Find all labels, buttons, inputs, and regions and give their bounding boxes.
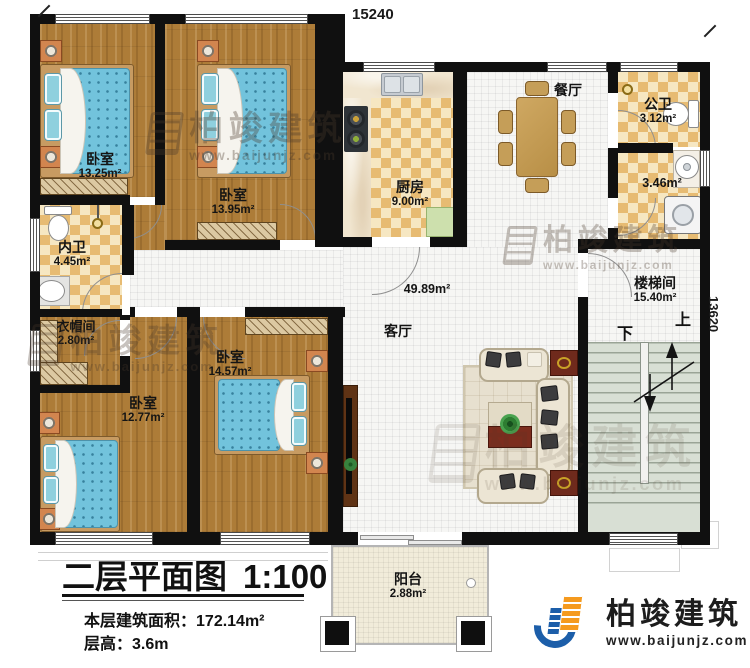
floor-height-value: 3.6m [132,636,168,653]
room-area: 3.12m² [618,113,698,126]
dining-table [516,97,558,177]
window-public-bath [620,62,678,72]
wall-stair-left [578,297,588,545]
bed-pillow [45,74,61,104]
public-bath-label: 公卫 3.12m² [618,97,698,126]
dining-chair [561,142,576,166]
window-bedroom-d [220,532,310,545]
plant-icon [500,414,520,434]
lamp-icon [92,218,103,229]
brand-logo: 柏竣建筑 www.baijunjz.com [534,592,748,656]
sofa-cushion [485,351,502,368]
room-area: 49.89m² [384,282,470,296]
room-area: 2.88m² [363,588,453,601]
title-underline [62,594,304,597]
dining-chair [498,142,513,166]
wall-stair-left-top [578,239,588,253]
basin-drain [683,163,691,171]
stair-down-label: 下 [610,320,640,344]
dimension-top: 15240 [352,6,394,23]
wall-dining-bath-2 [608,148,618,198]
wall-bedroom-c-top-left [130,307,135,317]
bed-pillow [45,110,61,140]
sofa-cushion [505,351,521,367]
brand-name: 柏竣建筑 [606,600,748,630]
window-bedroom-c [55,532,153,545]
room-name: 餐厅 [528,83,608,99]
dining-chair [561,110,576,134]
wall-kitchen-bottom-left [343,237,372,247]
stairwell-label: 楼梯间 15.40m² [612,276,698,305]
porch-outline [609,548,680,572]
plan-scale: 1:100 [243,558,327,596]
kitchen-sink-basin [403,76,420,93]
nightstand [40,40,62,62]
washing-machine-door [672,204,694,226]
bed-pillow [292,383,306,411]
window-bedroom-a [55,14,150,24]
brand-url: www.baijunjz.com [606,633,748,648]
dimension-tick [704,25,717,38]
dimension-right: 13620 [706,296,721,332]
wall-dining-bath-1 [608,62,618,93]
sofa-cushion [499,473,516,490]
wall-wash-bottom [578,239,710,249]
sofa-cushion [519,473,536,490]
inner-bath-label: 内卫 4.45m² [32,240,112,269]
tv-icon [346,398,352,494]
floor-height-label: 层高： [84,636,132,653]
room-area: 12.77m² [98,412,188,425]
toilet-bowl-icon [48,215,69,241]
pull-cord [97,205,99,219]
room-name: 卧室 [188,188,278,204]
toilet-tank-icon [44,206,72,215]
wall-bedroom-d-right [328,307,343,532]
balcony-drain-icon [466,578,476,588]
bed-mattress [218,379,280,451]
wall-inner-bath-right [122,205,134,275]
side-table [550,350,578,376]
balcony-label: 阳台 2.88m² [363,572,453,601]
bedroom-c-label: 卧室 12.77m² [98,396,188,425]
bedroom-a-label: 卧室 13.25m² [55,152,145,181]
dining-chair [525,178,549,193]
room-area: 9.00m² [365,196,455,209]
room-area: 3.46m² [622,176,702,190]
bed-sheet [274,379,294,451]
wash-area-label: 3.46m² [622,176,702,190]
plan-title-row: 二层平面图 1:100 [62,550,327,598]
sofa-cushion-light [527,352,542,367]
plant-icon [344,458,357,471]
window-kitchen [363,62,435,72]
floor-area-value: 172.14m² [196,613,265,630]
wall-cloak-right-top [120,315,130,320]
nightstand [306,452,328,474]
lamp-icon [622,84,633,95]
bedroom-d-label: 卧室 14.57m² [185,350,275,379]
wall-cloak-bottom [30,385,120,393]
title-underline-thin [62,600,304,601]
room-name: 公卫 [618,97,698,113]
bed-pillow [202,74,218,104]
room-area: 4.45m² [32,256,112,269]
wall-bedroom-b-kitchen [315,14,343,247]
wall-bedroom-a-b [155,14,165,205]
sofa-cushion [540,409,558,426]
room-name: 楼梯间 [612,276,698,292]
room-name: 卧室 [55,152,145,168]
dining-label: 餐厅 [528,83,608,99]
room-name: 客厅 [358,324,438,340]
cloakroom-rack-bottom [40,362,88,385]
nightstand [197,146,219,168]
room-name: 卧室 [185,350,275,366]
corridor-floor [130,250,343,307]
room-name: 厨房 [365,180,455,196]
bedroom-b-label: 卧室 13.95m² [188,188,278,217]
wall-kitchen-right [453,62,467,247]
room-area: 13.95m² [188,204,278,217]
nightstand [197,40,219,62]
room-name: 衣帽间 [34,320,118,335]
room-area: 13.25m² [55,168,145,181]
bed-pillow [202,110,218,140]
cloakroom-label: 衣帽间 2.80m² [34,320,118,347]
bed-pillow [44,445,58,471]
window-dining [547,62,607,72]
bedroom-a-wardrobe [40,178,128,195]
wall-pubbath-wash-divider [618,143,673,153]
wall-outer-left [30,14,40,545]
dining-chair [498,110,513,134]
floor-area-label: 本层建筑面积： [84,613,196,630]
balcony-slider-leaf [408,540,462,545]
window-stairwell [609,533,678,545]
sofa-cushion [540,433,558,449]
stair-up-label: 上 [668,306,698,330]
kitchen-label: 厨房 9.00m² [365,180,455,209]
nightstand [306,350,328,372]
room-name: 内卫 [32,240,112,256]
side-table [550,470,578,496]
living-label: 客厅 [358,324,438,340]
sofa-cushion [540,385,559,402]
floor-height-line: 层高：3.6m [84,630,168,654]
room-area: 15.40m² [612,292,698,305]
wall-bath-cloak-divider [40,309,122,317]
window-bedroom-b [185,14,308,24]
bed-pillow [44,477,58,503]
room-area: 2.80m² [34,335,118,348]
wall-bedroom-c-top-right [177,307,200,317]
room-name: 卧室 [98,396,188,412]
bedroom-d-wardrobe [245,318,328,335]
balcony-column [461,621,485,645]
plan-title: 二层平面图 [62,550,227,598]
brand-building-orange-icon [560,596,582,632]
wall-bedroom-a-bottom [40,195,130,205]
balcony-slider-leaf [360,535,414,540]
wall-bedroom-b-bottom [165,240,280,250]
kitchen-sink-basin [384,76,401,93]
floor-area-line: 本层建筑面积：172.14m² [84,607,265,631]
bed-pillow [292,417,306,445]
living-area-label: 49.89m² [384,282,470,296]
nightstand [38,412,60,434]
sink-basin-icon [38,280,65,302]
bedroom-b-wardrobe [197,222,277,240]
stove-burner [347,110,365,128]
floor-plan-canvas: 卧室 13.25m² 卧室 13.95m² 厨房 9.00m² 餐厅 公卫 3.… [0,0,750,668]
room-name: 阳台 [363,572,453,588]
balcony-column [325,621,349,645]
room-area: 14.57m² [185,366,275,379]
wall-cloak-right [120,356,130,393]
stove-burner [347,130,365,148]
brand-logo-icon [534,592,596,656]
